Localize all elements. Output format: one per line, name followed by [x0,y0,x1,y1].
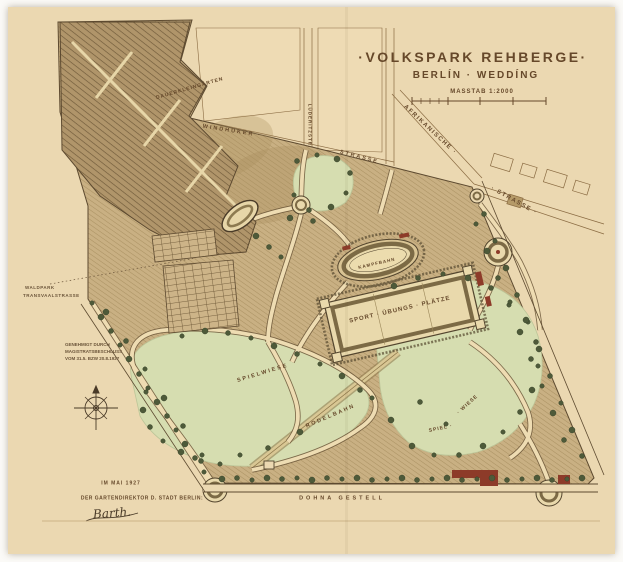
approval-note-line1: GENEHMIGT DURCH [65,343,110,348]
boundary-note-line2: TRANSVAALSTRASSE [23,294,80,299]
plan-paper: ·VOLKSPARK REHBERGE· BERLÍN · WEDDÍNG MA… [8,7,615,554]
scale-bar [412,97,546,105]
map-title: ·VOLKSPARK REHBERGE· [358,50,587,64]
plan-drawing [8,7,615,554]
street-label-dohnagestell: DOHNA GESTELL [299,496,385,502]
signature-date: IM MAI 1927 [101,482,141,487]
signature-title-line: DER GARTENDIREKTOR D. STADT BERLIN: [81,497,203,502]
boundary-note-line1: WALDPARK [25,286,55,291]
approval-note-line2: MAGISTRATSBESCHLUSS [65,350,122,355]
approval-note-line3: VOM 31.5. BZW 20.8.1927 [65,357,119,362]
signature-name: Barth. [93,506,132,521]
paper-crease [345,7,348,554]
street-label-luederitz: LÜDERITZSTR. [307,104,312,149]
map-subtitle: BERLÍN · WEDDÍNG [413,71,539,81]
scanned-park-plan: ·VOLKSPARK REHBERGE· BERLÍN · WEDDÍNG MA… [0,0,623,562]
scale-label: MASSTAB 1:2000 [450,89,514,95]
compass-rose [74,386,118,430]
